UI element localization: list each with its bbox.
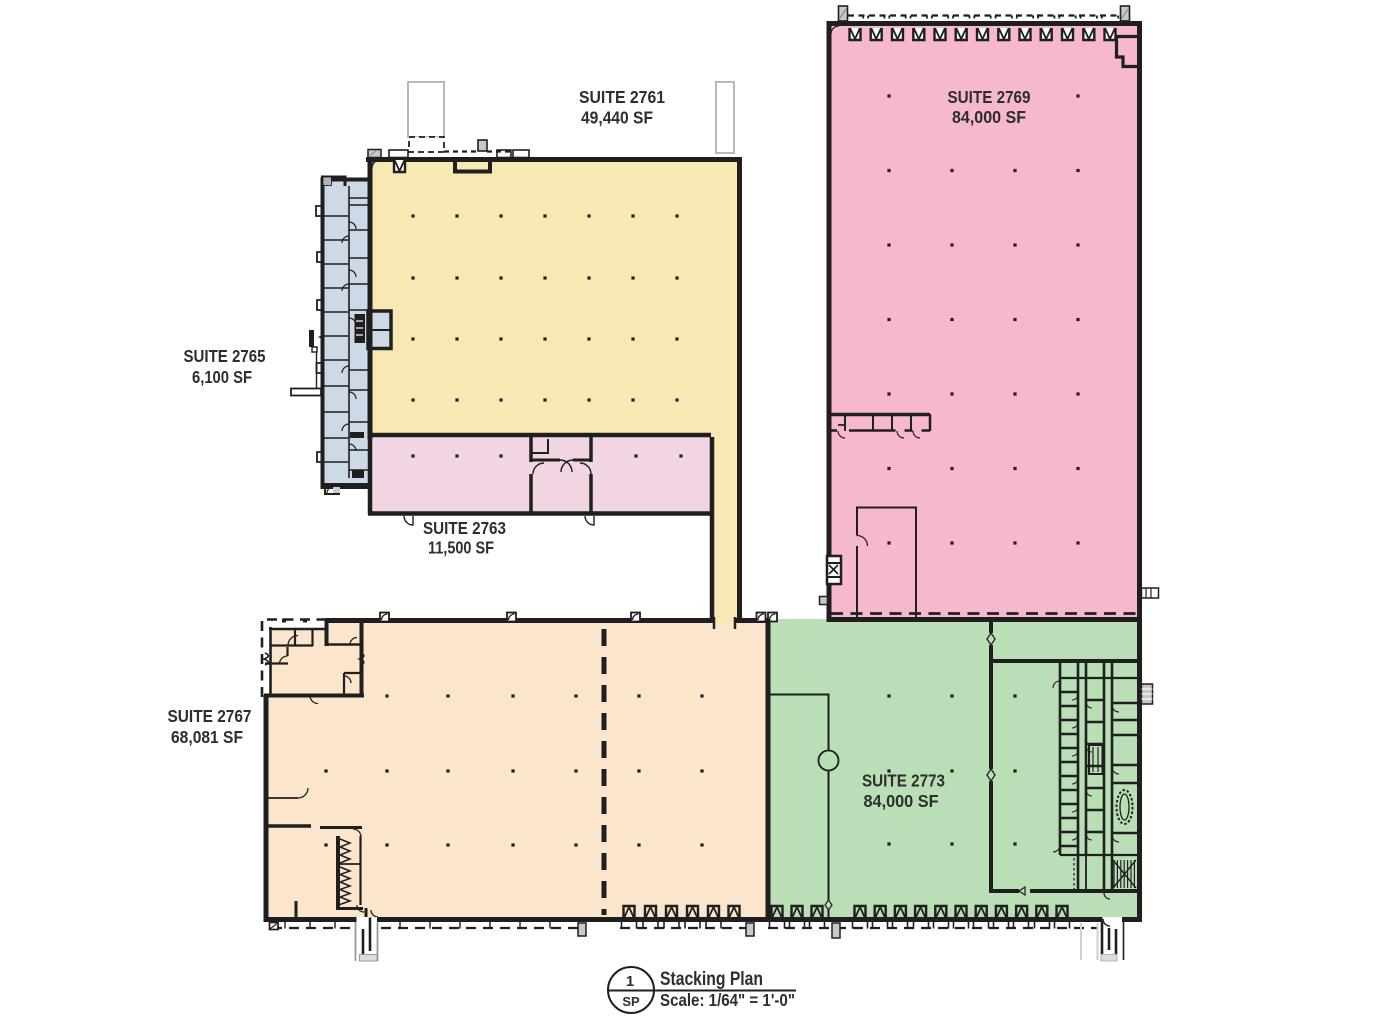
svg-text:SP: SP	[622, 994, 640, 1009]
svg-text:68,081 SF: 68,081 SF	[171, 727, 243, 747]
svg-text:Stacking Plan: Stacking Plan	[660, 969, 763, 990]
svg-text:11,500 SF: 11,500 SF	[428, 538, 494, 558]
svg-text:SUITE 2763: SUITE 2763	[423, 518, 506, 538]
svg-text:SUITE 2769: SUITE 2769	[948, 87, 1031, 107]
svg-text:Scale: 1/64" = 1'-0": Scale: 1/64" = 1'-0"	[660, 990, 795, 1010]
svg-text:84,000 SF: 84,000 SF	[864, 791, 939, 811]
svg-text:49,440 SF: 49,440 SF	[581, 108, 653, 128]
svg-text:6,100 SF: 6,100 SF	[192, 367, 252, 387]
svg-text:1: 1	[626, 973, 634, 990]
svg-text:84,000 SF: 84,000 SF	[952, 107, 1026, 127]
svg-text:SUITE 2767: SUITE 2767	[168, 706, 252, 726]
svg-text:SUITE 2765: SUITE 2765	[184, 346, 266, 366]
svg-text:SUITE 2761: SUITE 2761	[579, 87, 665, 107]
svg-text:SUITE 2773: SUITE 2773	[862, 771, 945, 791]
